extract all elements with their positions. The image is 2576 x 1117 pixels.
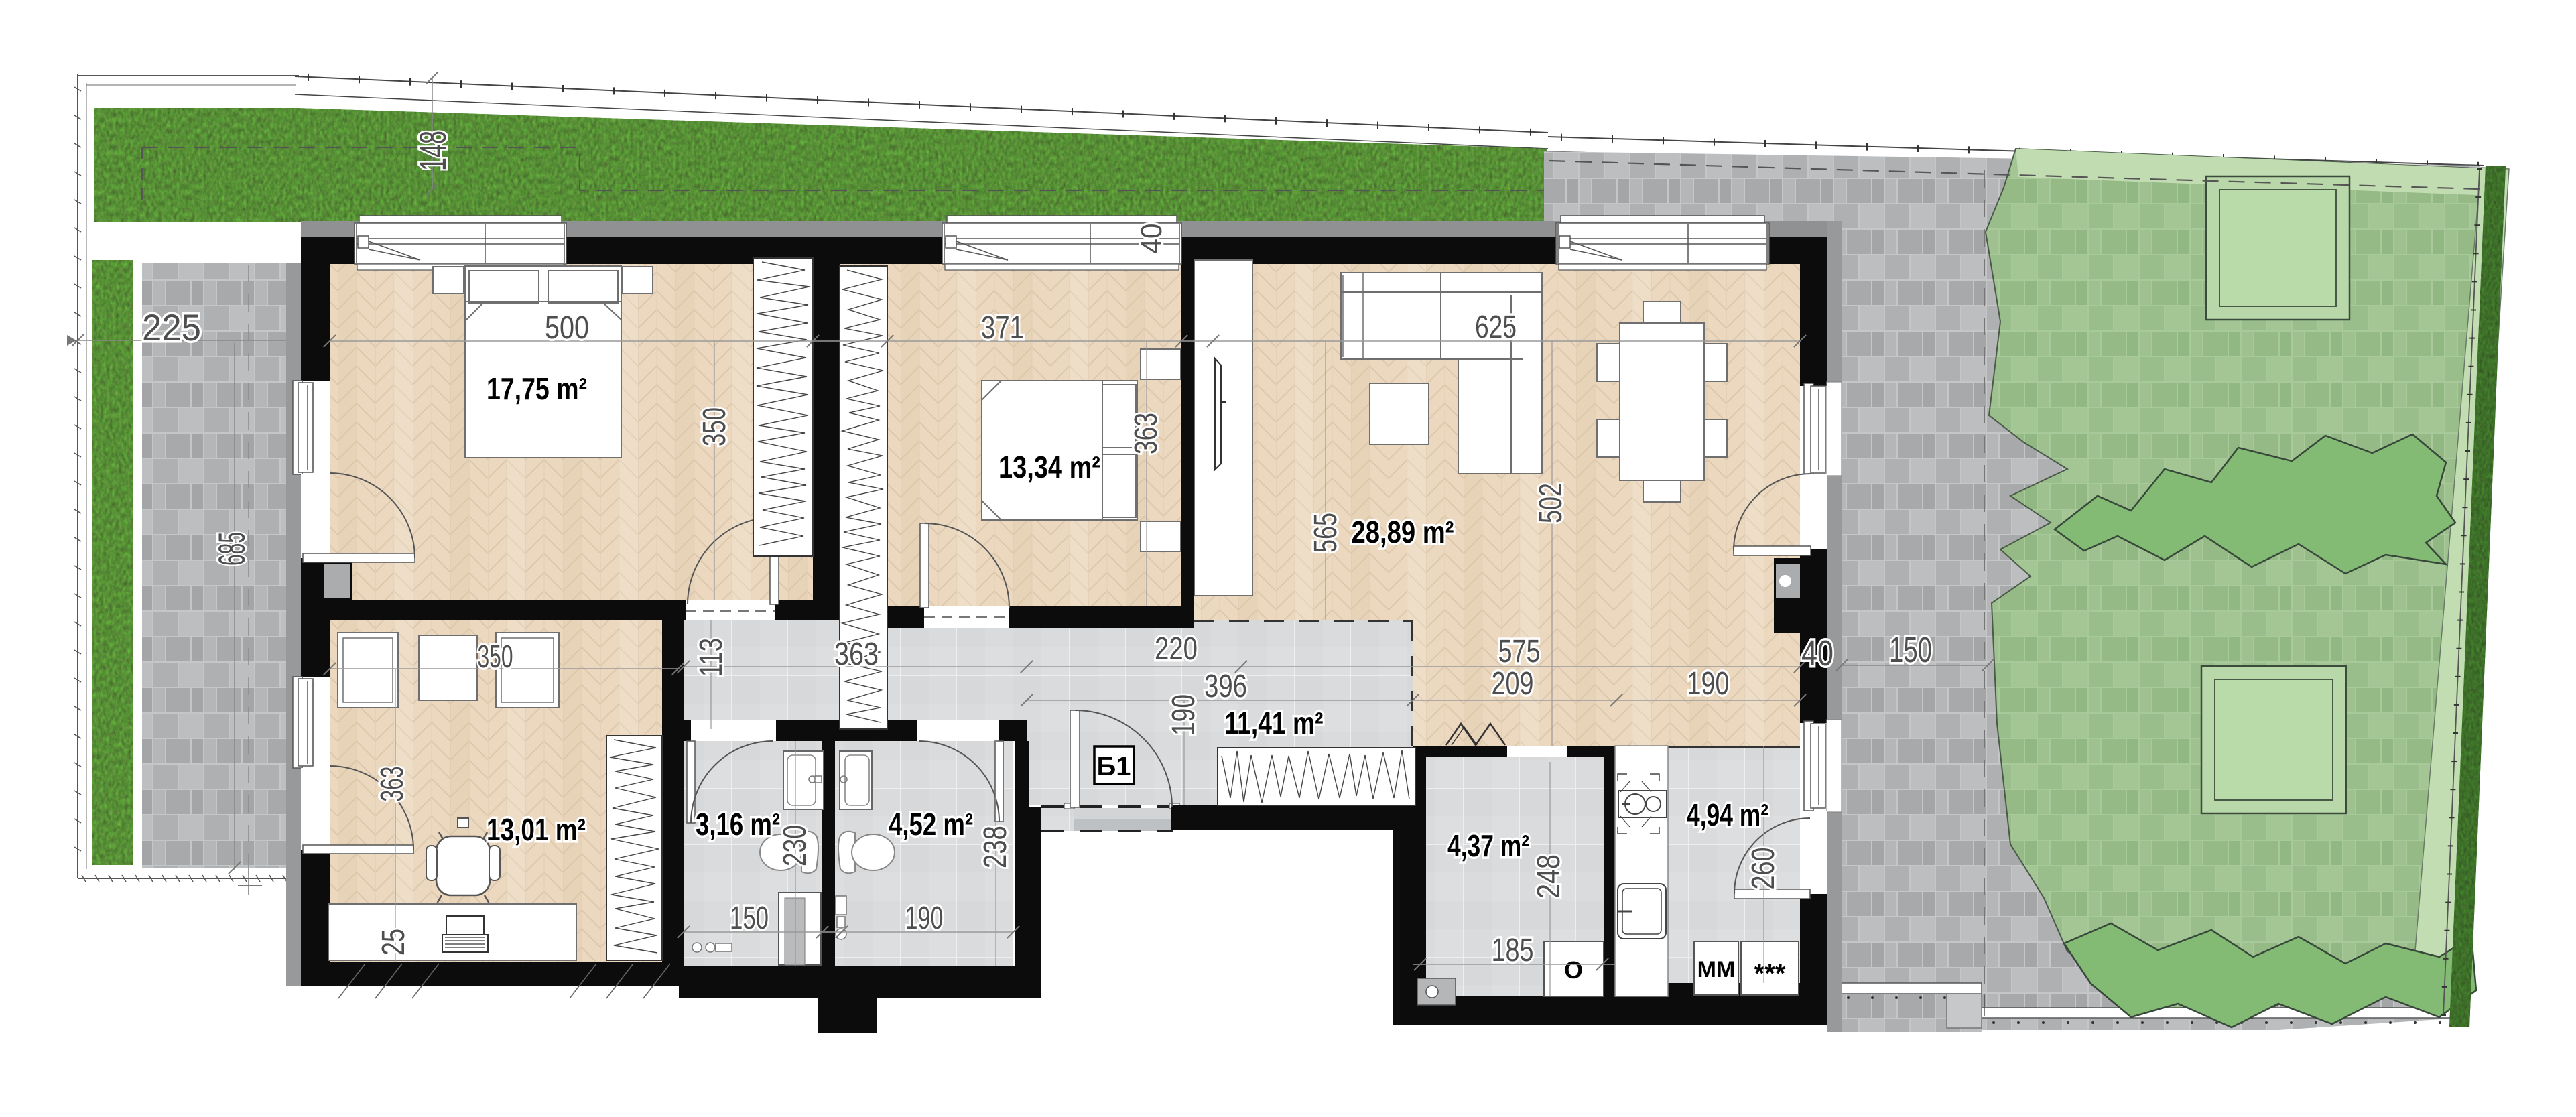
svg-text:13,34 m²: 13,34 m² xyxy=(999,450,1100,484)
svg-text:4,94 m²: 4,94 m² xyxy=(1687,797,1768,832)
svg-text:150: 150 xyxy=(730,901,769,936)
svg-text:150: 150 xyxy=(1889,630,1932,670)
svg-text:363: 363 xyxy=(375,767,410,802)
svg-text:500: 500 xyxy=(545,310,589,346)
svg-text:Б1: Б1 xyxy=(1097,752,1131,781)
svg-text:13,01 m²: 13,01 m² xyxy=(487,812,586,847)
svg-text:209: 209 xyxy=(1492,666,1534,702)
svg-text:363: 363 xyxy=(1129,413,1164,454)
svg-text:625: 625 xyxy=(1475,310,1517,345)
svg-text:371: 371 xyxy=(981,310,1024,346)
svg-text:363: 363 xyxy=(834,637,879,672)
svg-text:248: 248 xyxy=(1531,854,1567,899)
svg-text:28,89 m²: 28,89 m² xyxy=(1352,515,1454,549)
svg-text:190: 190 xyxy=(1687,666,1730,702)
svg-text:25: 25 xyxy=(376,929,411,956)
svg-text:575: 575 xyxy=(1498,634,1541,669)
svg-text:225: 225 xyxy=(142,306,201,348)
svg-text:148: 148 xyxy=(411,131,454,171)
svg-text:350: 350 xyxy=(478,639,513,675)
svg-text:230: 230 xyxy=(777,825,813,866)
svg-text:396: 396 xyxy=(1204,669,1247,704)
svg-text:190: 190 xyxy=(905,901,944,936)
svg-text:220: 220 xyxy=(1155,631,1198,667)
svg-text:***: *** xyxy=(1754,959,1786,988)
svg-text:4,37 m²: 4,37 m² xyxy=(1447,828,1529,863)
svg-text:685: 685 xyxy=(210,532,253,566)
svg-text:40: 40 xyxy=(1135,224,1168,254)
svg-text:260: 260 xyxy=(1746,848,1781,890)
svg-text:17,75 m²: 17,75 m² xyxy=(487,371,587,406)
svg-text:MM: MM xyxy=(1697,957,1736,982)
svg-text:185: 185 xyxy=(1492,933,1534,968)
svg-text:238: 238 xyxy=(978,826,1013,868)
svg-text:40: 40 xyxy=(1801,633,1833,673)
svg-text:350: 350 xyxy=(697,407,732,446)
svg-text:502: 502 xyxy=(1533,483,1569,523)
svg-text:3,16 m²: 3,16 m² xyxy=(696,807,780,842)
svg-text:113: 113 xyxy=(694,638,729,677)
svg-text:4,52 m²: 4,52 m² xyxy=(889,807,973,842)
svg-text:190: 190 xyxy=(1166,694,1202,736)
svg-text:11,41 m²: 11,41 m² xyxy=(1225,706,1324,740)
svg-text:565: 565 xyxy=(1308,513,1344,553)
svg-text:O: O xyxy=(1564,956,1583,984)
